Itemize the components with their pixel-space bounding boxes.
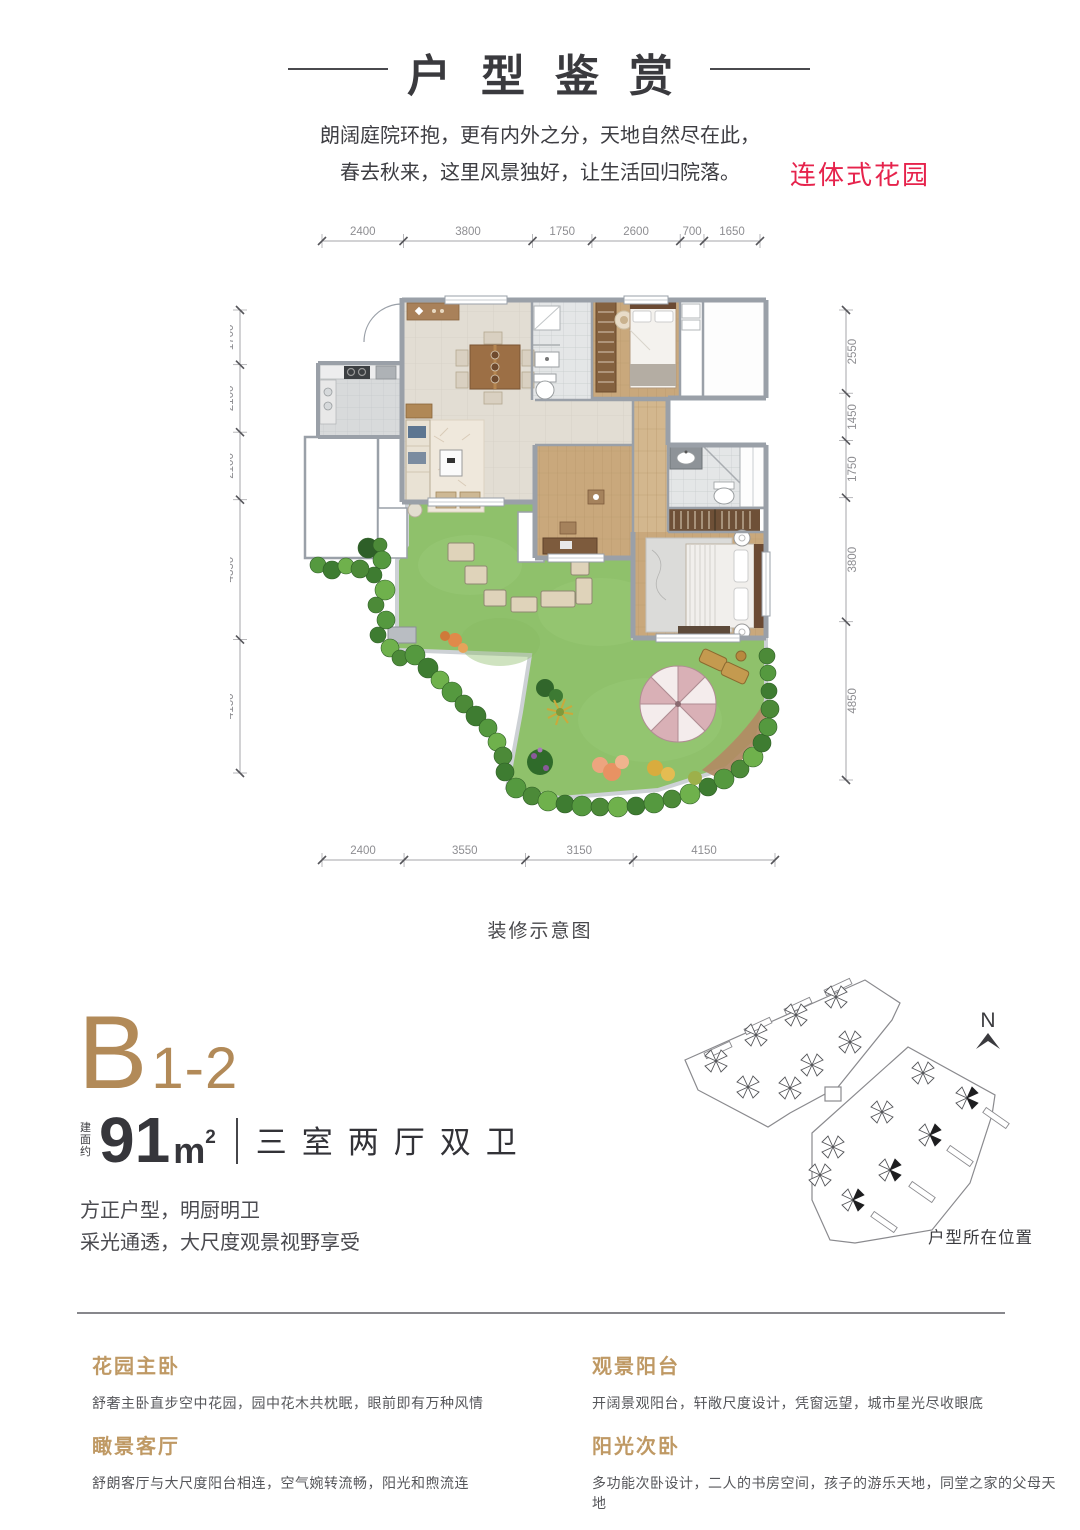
svg-text:4350: 4350: [230, 557, 236, 583]
svg-text:3550: 3550: [452, 845, 478, 857]
unit-layout: 三室两厅双卫: [256, 1117, 532, 1162]
side-table: [736, 651, 746, 661]
north-label: N: [980, 1009, 995, 1032]
svg-text:3800: 3800: [455, 226, 481, 238]
svg-text:1450: 1450: [847, 404, 859, 430]
svg-text:3800: 3800: [847, 547, 859, 573]
section-divider: [77, 1312, 1005, 1314]
svg-text:3150: 3150: [566, 845, 592, 857]
feature-text: 开阔景观阳台，轩敞尺度设计，凭窗远望，城市星光尽收眼底: [592, 1393, 1062, 1413]
brochure-page: { "page": { "title": "户型鉴赏" }, "intro": …: [0, 0, 1080, 1530]
unit-code-main: B: [78, 1012, 147, 1094]
feature-view-balcony: 观景阳台 开阔景观阳台，轩敞尺度设计，凭窗远望，城市星光尽收眼底: [592, 1350, 1062, 1413]
site-plan-svg: N 户型所在位置: [660, 975, 1060, 1265]
dimension-bottom: 2400355031504150: [318, 845, 779, 867]
site-caption: 户型所在位置: [928, 1228, 1033, 1247]
garden-type-label: 连体式花园: [790, 155, 930, 192]
svg-text:2600: 2600: [623, 226, 649, 238]
svg-text:1750: 1750: [549, 226, 575, 238]
svg-text:2400: 2400: [350, 845, 376, 857]
area-prefix: 建面约: [80, 1122, 93, 1158]
title-line-left: [288, 68, 388, 70]
area-divider: [236, 1118, 238, 1164]
feature-text: 多功能次卧设计，二人的书房空间，孩子的游乐天地，同堂之家的父母天地: [592, 1473, 1062, 1513]
north-arrow-icon: [976, 1033, 1000, 1049]
feature-text: 舒奢主卧直步空中花园，园中花木共枕眠，眼前即有万种风情: [92, 1393, 562, 1413]
feature-text: 舒朗客厅与大尺度阳台相连，空气婉转流畅，阳光和煦流连: [92, 1473, 562, 1493]
unit-code-sub: 1-2: [151, 1044, 238, 1094]
floor-plan-svg: 24003800175026007001650 2400355031504150…: [230, 215, 870, 880]
feature-title: 瞰景客厅: [92, 1430, 562, 1459]
svg-text:1650: 1650: [719, 226, 745, 238]
entry-door-arc: [364, 304, 402, 342]
unit-code: B 1-2: [78, 1012, 238, 1094]
svg-text:2550: 2550: [847, 339, 859, 365]
feature-title: 阳光次卧: [592, 1430, 1062, 1459]
dimension-left: 17002100210043504150: [230, 306, 247, 777]
svg-text:700: 700: [682, 226, 701, 238]
svg-text:4150: 4150: [230, 693, 236, 719]
floor-plan: 24003800175026007001650 2400355031504150…: [230, 215, 870, 880]
feature-garden-master: 花园主卧 舒奢主卧直步空中花园，园中花木共枕眠，眼前即有万种风情: [92, 1350, 562, 1413]
svg-text:2100: 2100: [230, 453, 236, 479]
site-plan: N 户型所在位置: [660, 975, 1060, 1265]
svg-text:2400: 2400: [350, 226, 376, 238]
page-title: 户型鉴赏: [377, 40, 703, 104]
svg-text:2100: 2100: [230, 386, 236, 412]
balcony: [703, 298, 766, 398]
unit-desc-2: 采光通透，大尺度观景视野享受: [80, 1226, 360, 1255]
site-connector: [825, 1087, 841, 1101]
dimension-top: 24003800175026007001650: [318, 226, 764, 248]
feature-sunny-bedroom: 阳光次卧 多功能次卧设计，二人的书房空间，孩子的游乐天地，同堂之家的父母天地: [592, 1430, 1062, 1513]
dimension-right: 25501450175038004850: [839, 306, 859, 784]
unit-desc-1: 方正户型，明厨明卫: [80, 1194, 260, 1223]
intro-line-1: 朗阔庭院环抱，更有内外之分，天地自然尽在此，: [0, 118, 1080, 155]
feature-title: 花园主卧: [92, 1350, 562, 1379]
svg-text:4150: 4150: [691, 845, 717, 857]
svg-text:4850: 4850: [847, 688, 859, 714]
area-unit: m2: [173, 1121, 216, 1168]
svg-text:1700: 1700: [230, 325, 236, 351]
page-title-row: 户型鉴赏: [0, 40, 1080, 104]
svg-text:1750: 1750: [847, 456, 859, 482]
area-value: 91: [99, 1112, 170, 1168]
feature-view-livingroom: 瞰景客厅 舒朗客厅与大尺度阳台相连，空气婉转流畅，阳光和煦流连: [92, 1430, 562, 1493]
title-line-right: [710, 68, 810, 70]
area-superscript: 2: [205, 1127, 216, 1148]
unit-area-row: 建面约 91 m2 三室两厅双卫: [80, 1112, 532, 1168]
plan-caption: 装修示意图: [0, 916, 1080, 943]
feature-title: 观景阳台: [592, 1350, 1062, 1379]
